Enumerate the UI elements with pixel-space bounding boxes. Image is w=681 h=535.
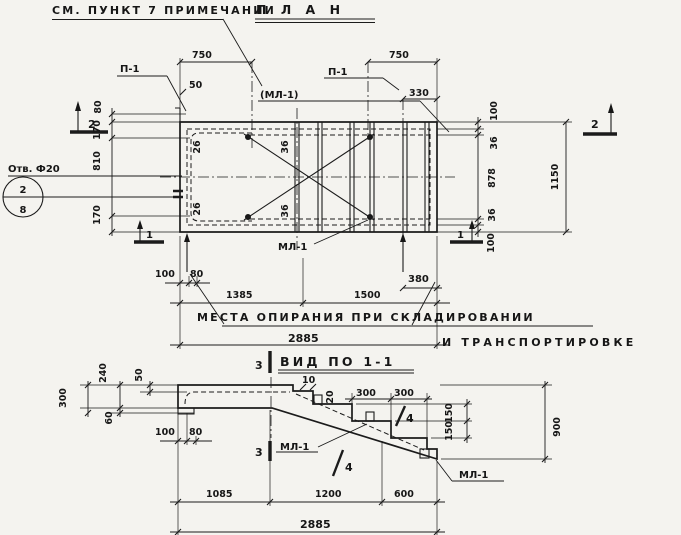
- label-ml1-end: МЛ-1: [459, 470, 488, 481]
- dim-20: 20: [325, 390, 336, 404]
- support-note-line1: МЕСТА ОПИРАНИЯ ПРИ СКЛАДИРОВАНИИ: [197, 311, 535, 324]
- view-title: ВИД ПО 1-1: [280, 354, 396, 369]
- dim-750-right: 750: [389, 50, 409, 61]
- section-2-right: 2: [591, 118, 599, 131]
- dim-1200: 1200: [315, 489, 342, 500]
- dim-50: 50: [189, 80, 203, 91]
- dim-810: 810: [92, 151, 103, 171]
- dim-80-view: 80: [189, 427, 203, 438]
- dim-1085: 1085: [206, 489, 232, 500]
- support-note-line2: И ТРАНСПОРТИРОВКЕ: [442, 336, 636, 349]
- dim-1500: 1500: [354, 290, 381, 301]
- dim-80-bottom-left: 80: [190, 269, 204, 280]
- section-3-bottom: 3: [255, 446, 263, 459]
- annotations: СМ. ПУНКТ 7 ПРИМЕЧАНИИ П Л А Н П-1 750 5…: [8, 2, 636, 531]
- section-linework: [80, 351, 552, 535]
- label-ml1-bottom: МЛ-1: [278, 242, 307, 253]
- label-p1-left: П-1: [120, 64, 140, 75]
- dim-170-top: 170: [92, 120, 103, 140]
- pos-26-top: 26: [192, 140, 203, 154]
- dim-100-bottom-left: 100: [155, 269, 175, 280]
- section-1-right: 1: [457, 230, 464, 241]
- dim-300-b: 300: [394, 388, 414, 399]
- dim-878: 878: [487, 168, 498, 188]
- dim-900: 900: [552, 417, 563, 437]
- dim-100-view: 100: [155, 427, 175, 438]
- dim-170-bottom: 170: [92, 205, 103, 225]
- dim-300-a: 300: [356, 388, 376, 399]
- balloon-bottom: 8: [20, 205, 27, 216]
- dim-100-bottom-right: 100: [486, 233, 497, 253]
- dim-380: 380: [408, 274, 429, 285]
- label-ml1-bracket: (МЛ-1): [260, 90, 299, 101]
- blueprint-sheet: СМ. ПУНКТ 7 ПРИМЕЧАНИИ П Л А Н П-1 750 5…: [0, 0, 681, 535]
- dim-240: 240: [98, 363, 109, 383]
- dim-750-left: 750: [192, 50, 212, 61]
- label-p1-right: П-1: [328, 67, 348, 78]
- balloon-top: 2: [20, 185, 27, 196]
- pos-36-bottom: 36: [280, 204, 291, 218]
- dim-330: 330: [409, 88, 429, 99]
- dim-300-left: 300: [58, 388, 69, 408]
- pos-4-upper: 4: [406, 412, 414, 425]
- section-1-left: 1: [146, 230, 153, 241]
- dim-60: 60: [104, 411, 115, 425]
- dim-36-bottom-right: 36: [487, 208, 498, 222]
- pos-36-top: 36: [280, 140, 291, 154]
- dim-600: 600: [394, 489, 414, 500]
- dim-1150: 1150: [550, 163, 561, 190]
- dim-1385: 1385: [226, 290, 252, 301]
- plan-linework: [3, 19, 617, 349]
- pos-4-lower: 4: [345, 461, 353, 474]
- dim-80-left: 80: [93, 100, 104, 114]
- dim-150-b: 150: [444, 421, 455, 441]
- dim-36-top-right: 36: [489, 136, 500, 150]
- dim-150-a: 150: [444, 403, 455, 423]
- plan-title: П Л А Н: [256, 2, 345, 17]
- label-ml1-mid: МЛ-1: [280, 442, 309, 453]
- section-3-top: 3: [255, 359, 263, 372]
- dim-100-top-right: 100: [489, 101, 500, 121]
- pos-26-bottom: 26: [192, 202, 203, 216]
- dim-10: 10: [302, 375, 316, 386]
- label-otv: Отв. Ф20: [8, 164, 60, 175]
- note-text: СМ. ПУНКТ 7 ПРИМЕЧАНИИ: [52, 4, 276, 17]
- dim-2885-plan: 2885: [288, 332, 319, 345]
- dim-2885-view: 2885: [300, 518, 331, 531]
- technical-drawing: СМ. ПУНКТ 7 ПРИМЕЧАНИИ П Л А Н П-1 750 5…: [0, 0, 681, 535]
- dim-50-view: 50: [134, 368, 145, 382]
